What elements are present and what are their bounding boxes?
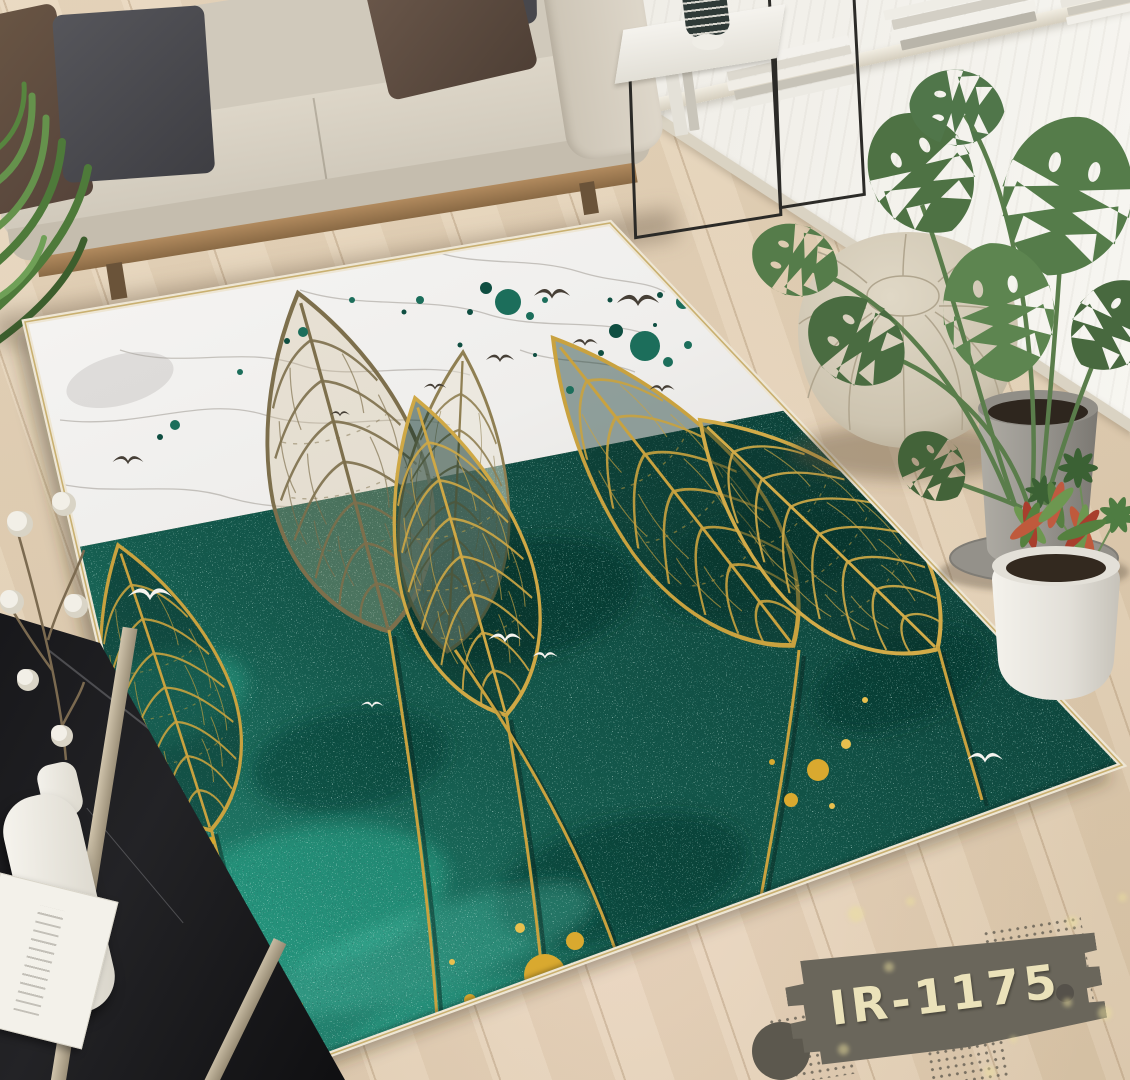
bokeh-dot: [1063, 998, 1072, 1007]
bokeh-dot: [984, 1066, 996, 1078]
bokeh-dot: [906, 897, 915, 906]
bokeh-dot: [1010, 1036, 1017, 1043]
bokeh-dot: [884, 962, 894, 972]
bokeh-dot: [838, 1044, 849, 1055]
bokeh-dot: [1066, 916, 1078, 928]
bokeh-dot: [1098, 1006, 1112, 1020]
product-code-text: IR-1175: [827, 954, 1064, 1037]
magazine-text-lines: [13, 905, 64, 1016]
bokeh-dot: [848, 906, 864, 922]
cotton-branch: [0, 430, 210, 810]
bokeh-dot: [1118, 893, 1127, 902]
white-pot: [992, 546, 1120, 700]
fern-plant: [0, 84, 88, 345]
living-room-product-photo: IR-1175: [0, 0, 1130, 1080]
cotton-balls: [0, 492, 88, 747]
